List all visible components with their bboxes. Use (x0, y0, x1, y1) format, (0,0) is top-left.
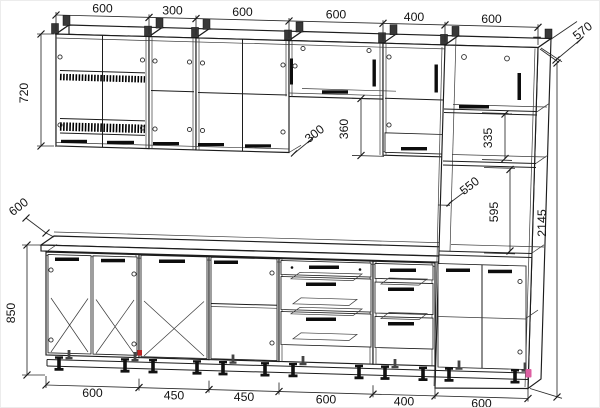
dim-gap-360-label: 360 (337, 119, 351, 140)
dim-counter-depth-label: 600 (6, 195, 31, 219)
dim-niche-595-label: 595 (487, 202, 501, 223)
base-cab4-drawers (281, 261, 371, 348)
dim-top-label-3: 600 (232, 5, 253, 19)
base-cab5-drawers (375, 263, 433, 349)
wall-cab2-front (149, 37, 196, 150)
dim-wall-height: 720 (17, 31, 54, 150)
drawing-canvas: 600 300 600 600 400 600 600 450 450 600 … (0, 0, 600, 408)
dim-bottom-label-1: 600 (82, 386, 103, 400)
dim-wall-height-label: 720 (17, 83, 31, 104)
dim-top-label-5: 400 (404, 10, 425, 24)
tall-cabinet-upper-side-handle (518, 73, 522, 100)
dim-bottom-label-5: 400 (394, 395, 415, 408)
dim-total-height-label: 2145 (535, 209, 549, 237)
dim-base-height-label: 850 (4, 303, 18, 324)
dim-bottom-label-6: 600 (471, 397, 492, 408)
dim-top-label-6: 600 (481, 12, 502, 26)
dim-counter-depth: 600 (6, 195, 54, 237)
dim-wall-depth-label: 300 (302, 122, 327, 146)
dim-column-depth-label: 570 (570, 19, 595, 43)
base-cab3-door (211, 257, 277, 360)
dim-bottom-label-2: 450 (164, 388, 185, 402)
kitchen-technical-drawing: 600 300 600 600 400 600 600 450 450 600 … (1, 1, 600, 408)
dim-top-label-2: 300 (162, 3, 183, 17)
base-cab2-door (141, 255, 207, 358)
dim-bottom-label-3: 450 (234, 390, 255, 404)
dim-top-label-1: 600 (92, 2, 113, 16)
wall-cab5-flap-door (385, 133, 443, 154)
dim-niche-335-label: 335 (481, 128, 495, 149)
pink-marker (526, 369, 532, 378)
dim-bottom-label-4: 600 (316, 393, 337, 407)
dim-top-label-4: 600 (326, 8, 347, 22)
tall-cabinet-upper-door-handle (459, 105, 489, 109)
red-marker (138, 350, 143, 356)
dim-wall-depth: 300 (291, 122, 327, 157)
dim-base-height: 850 (4, 242, 45, 379)
dim-gap-360: 360 (337, 95, 384, 159)
